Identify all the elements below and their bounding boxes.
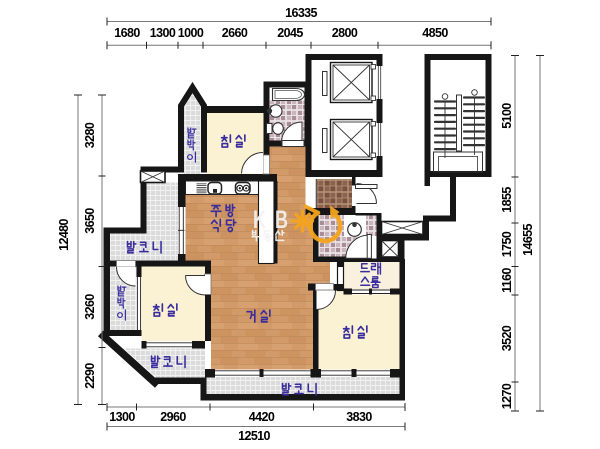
svg-text:1270: 1270 — [500, 383, 514, 409]
svg-text:5100: 5100 — [500, 103, 514, 129]
svg-text:4420: 4420 — [249, 410, 275, 424]
svg-text:1680: 1680 — [114, 26, 140, 40]
svg-text:12510: 12510 — [238, 429, 270, 443]
svg-text:14655: 14655 — [521, 223, 535, 255]
svg-text:12480: 12480 — [57, 218, 71, 250]
svg-text:2800: 2800 — [332, 26, 358, 40]
svg-text:1300: 1300 — [109, 410, 135, 424]
svg-text:2045: 2045 — [277, 26, 303, 40]
svg-text:1855: 1855 — [500, 187, 514, 213]
svg-text:KB: KB — [253, 205, 297, 234]
svg-text:3260: 3260 — [83, 294, 97, 320]
svg-text:1300: 1300 — [150, 26, 176, 40]
svg-text:3520: 3520 — [500, 325, 514, 351]
svg-text:16335: 16335 — [285, 6, 317, 20]
svg-text:2660: 2660 — [222, 26, 248, 40]
svg-text:2290: 2290 — [83, 363, 97, 389]
svg-text:3280: 3280 — [83, 122, 97, 148]
svg-text:4850: 4850 — [422, 26, 448, 40]
svg-text:1160: 1160 — [500, 267, 514, 292]
svg-text:1000: 1000 — [178, 26, 204, 40]
svg-text:1750: 1750 — [500, 231, 514, 257]
svg-text:3830: 3830 — [346, 410, 372, 424]
svg-text:3650: 3650 — [83, 208, 97, 234]
svg-text:2960: 2960 — [160, 410, 186, 424]
